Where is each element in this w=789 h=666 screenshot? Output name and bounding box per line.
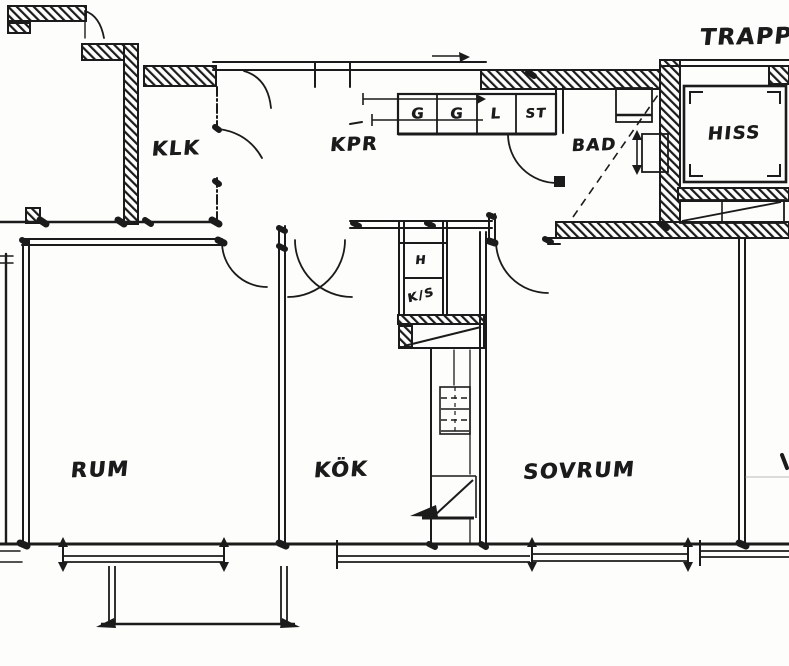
- kitchen-door-arc-b: [295, 240, 352, 297]
- hall-door-arc: [244, 71, 271, 108]
- room-door-arc: [222, 242, 267, 287]
- kitchen-label: KÖK: [313, 459, 369, 481]
- stairwell-label: TRAPPH: [699, 25, 789, 50]
- bath-label: BAD: [571, 137, 618, 155]
- hall-label: KPR: [329, 135, 379, 155]
- sink-arrow: [410, 505, 438, 517]
- shelf-arrow: [476, 94, 486, 104]
- partial-label-mark: [782, 455, 787, 468]
- bedroom-label: SOVRUM: [522, 459, 636, 483]
- cabinet-label-g2: G: [449, 106, 464, 121]
- entry-arrow: [459, 52, 470, 62]
- elevator-label: HISS: [707, 124, 762, 143]
- entry-door-arc: [85, 11, 104, 38]
- floor-plan: TRAPPH KLK KPR BAD HISS RUM KÖK SOVRUM H…: [0, 0, 789, 666]
- cabinet-label-l: L: [490, 106, 503, 121]
- room-label: RUM: [70, 459, 131, 482]
- bath-door-arc: [508, 134, 557, 183]
- closet-door-arc: [219, 129, 262, 158]
- balcony: [96, 566, 300, 628]
- vent-hood-label: H: [415, 254, 428, 266]
- cabinet-label-g1: G: [410, 106, 425, 121]
- kitchen-fixtures: [399, 324, 484, 518]
- floor-plan-drawing: [0, 0, 789, 666]
- cabinet-label-st: ST: [525, 107, 548, 121]
- stair-flight: [680, 200, 784, 223]
- closet-label: KLK: [151, 137, 201, 158]
- windows: [58, 537, 789, 572]
- kitchen-door-arc-a: [288, 240, 345, 297]
- bedroom-door-arc: [496, 241, 548, 293]
